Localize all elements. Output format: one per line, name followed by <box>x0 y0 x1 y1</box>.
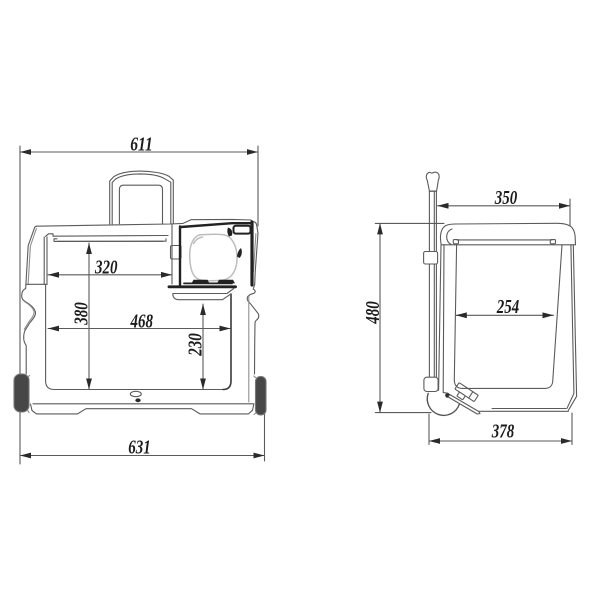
svg-text:380: 380 <box>72 302 93 325</box>
svg-text:611: 611 <box>130 135 153 156</box>
svg-text:254: 254 <box>496 297 519 318</box>
svg-text:468: 468 <box>130 312 153 333</box>
svg-text:480: 480 <box>363 301 384 324</box>
svg-text:320: 320 <box>94 258 117 279</box>
svg-text:350: 350 <box>494 188 517 209</box>
svg-text:378: 378 <box>491 422 514 443</box>
svg-text:230: 230 <box>185 333 206 356</box>
svg-text:631: 631 <box>128 438 151 459</box>
